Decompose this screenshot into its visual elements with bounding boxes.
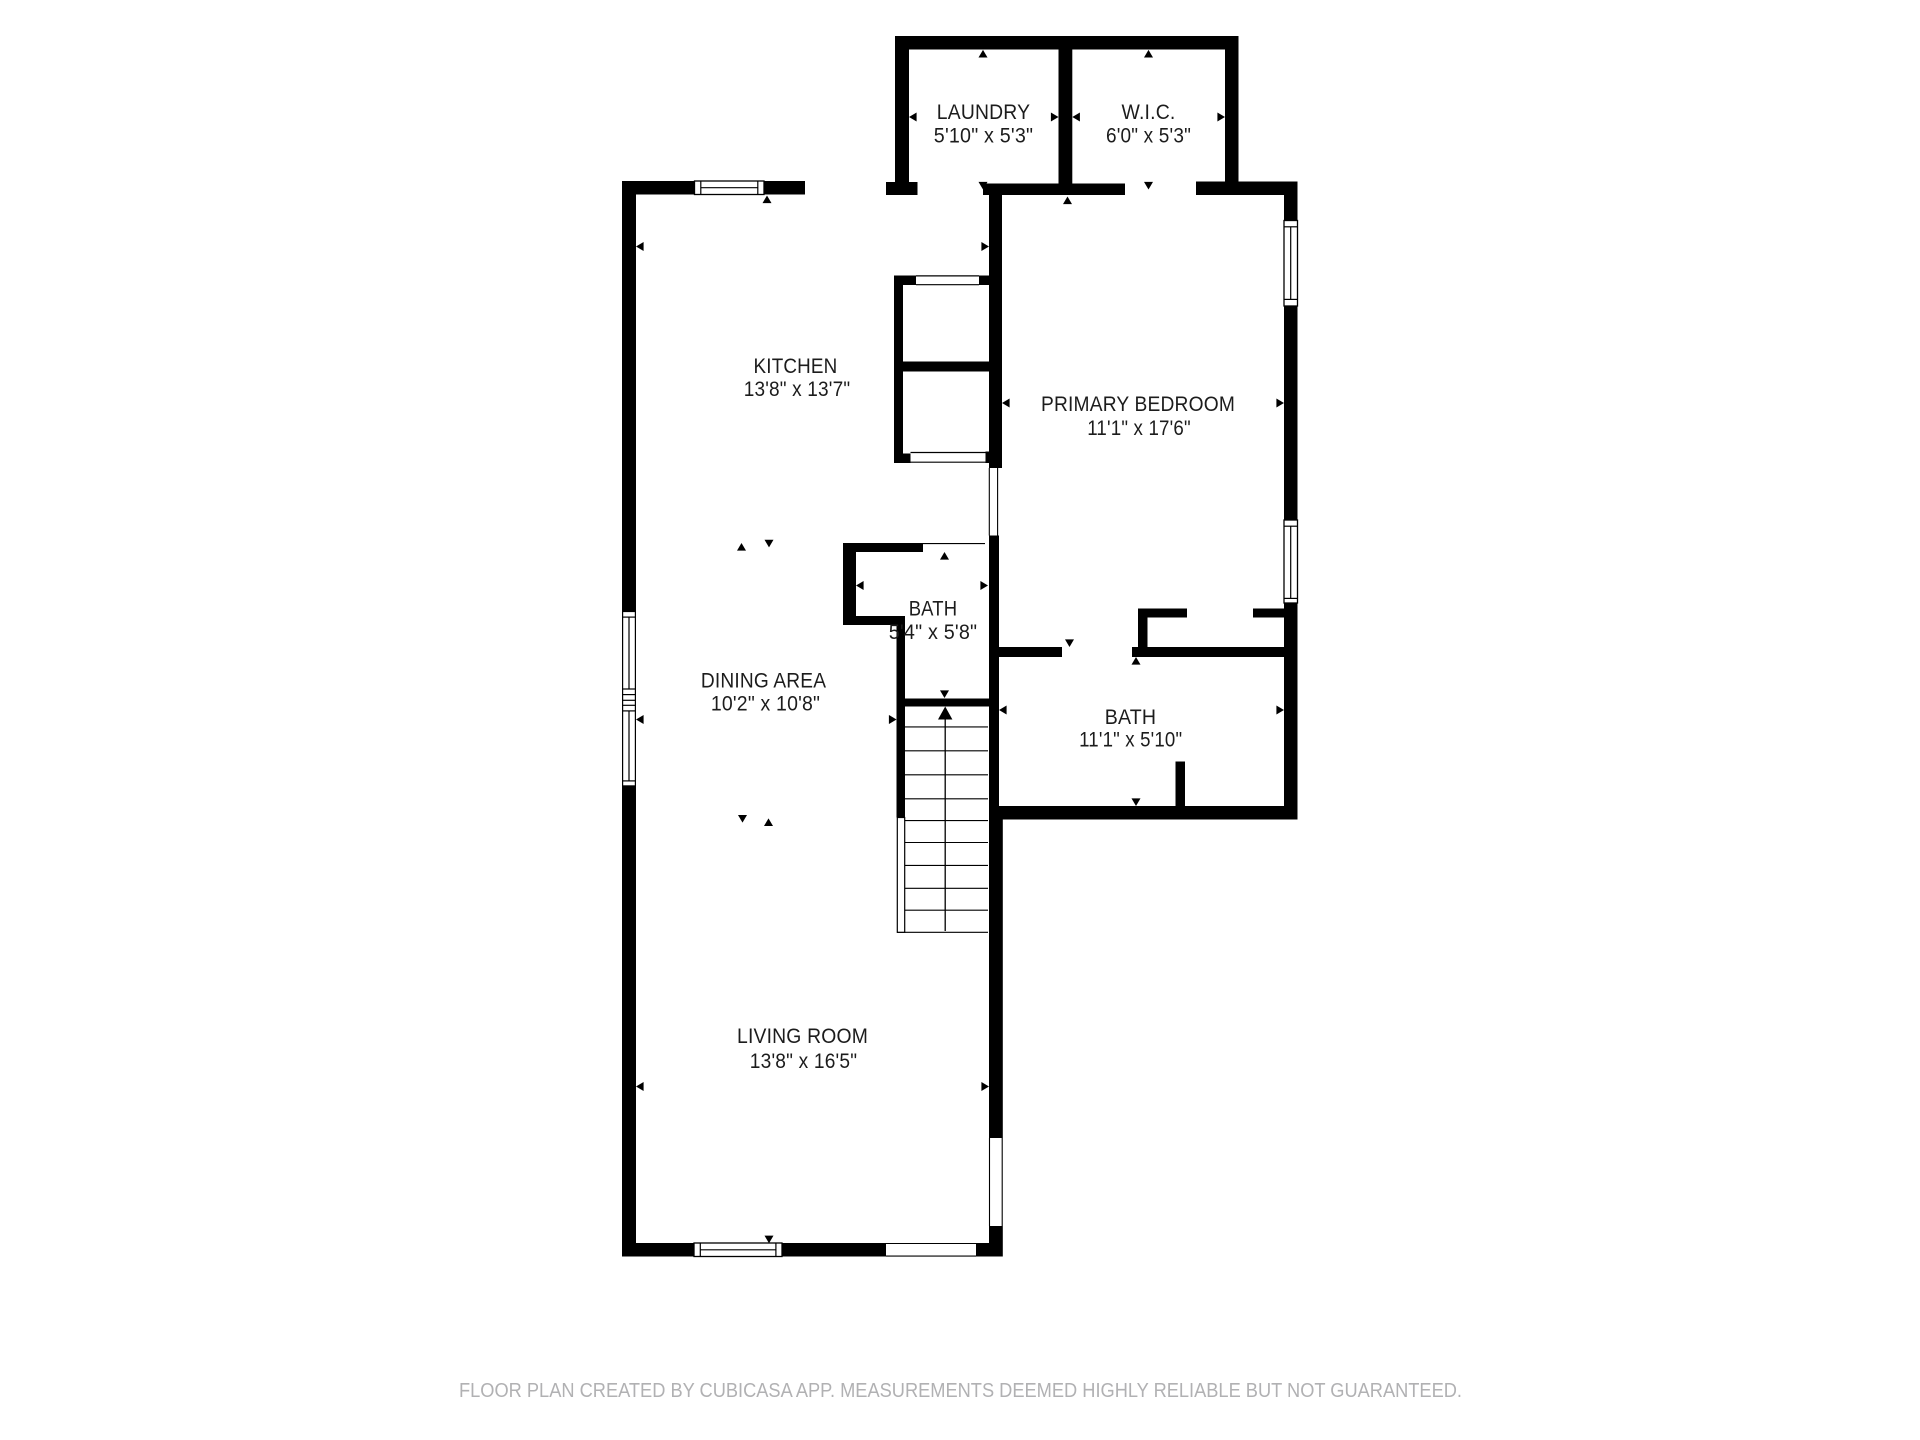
svg-text:6'0" x 5'3": 6'0" x 5'3": [1106, 124, 1191, 148]
svg-text:5'4" x 5'8": 5'4" x 5'8": [889, 620, 978, 644]
svg-text:13'8" x 16'5": 13'8" x 16'5": [750, 1049, 857, 1073]
svg-text:PRIMARY BEDROOM: PRIMARY BEDROOM: [1041, 392, 1235, 416]
svg-text:LIVING ROOM: LIVING ROOM: [737, 1024, 868, 1048]
svg-text:W.I.C.: W.I.C.: [1122, 100, 1176, 124]
svg-text:FLOOR PLAN CREATED BY CUBICASA: FLOOR PLAN CREATED BY CUBICASA APP. MEAS…: [459, 1380, 1462, 1402]
svg-text:5'10" x 5'3": 5'10" x 5'3": [934, 124, 1033, 148]
svg-text:11'1" x 17'6": 11'1" x 17'6": [1087, 416, 1191, 440]
svg-text:BATH: BATH: [1105, 705, 1157, 729]
svg-text:DINING AREA: DINING AREA: [701, 669, 827, 693]
svg-text:KITCHEN: KITCHEN: [754, 354, 838, 378]
svg-text:10'2" x 10'8": 10'2" x 10'8": [711, 692, 820, 716]
svg-text:BATH: BATH: [909, 597, 958, 621]
svg-text:LAUNDRY: LAUNDRY: [937, 100, 1030, 124]
svg-text:13'8" x 13'7": 13'8" x 13'7": [744, 377, 851, 401]
svg-text:11'1" x 5'10": 11'1" x 5'10": [1079, 728, 1182, 752]
